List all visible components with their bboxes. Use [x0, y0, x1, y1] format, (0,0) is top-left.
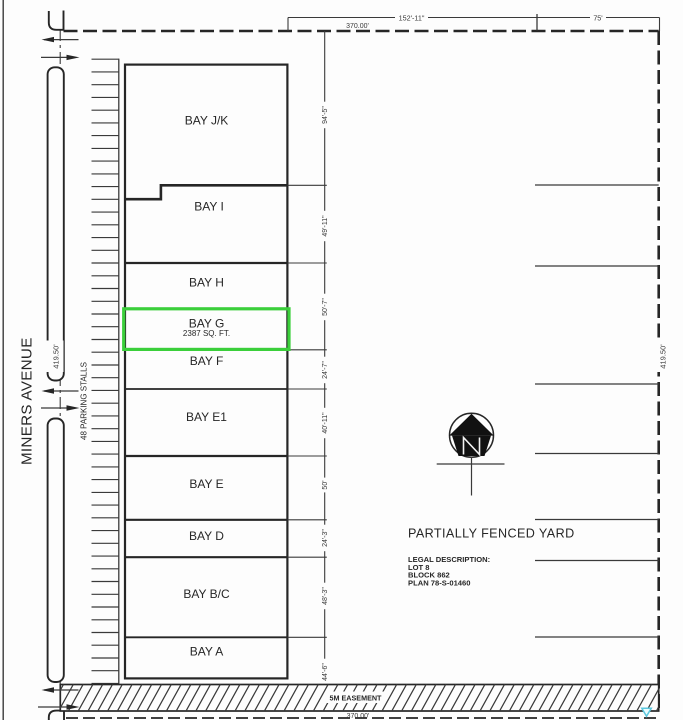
- svg-text:BAY G: BAY G: [189, 316, 225, 330]
- svg-text:48'-3": 48'-3": [322, 587, 329, 605]
- svg-text:PLAN 78-S-01460: PLAN 78-S-01460: [408, 578, 470, 587]
- svg-text:BAY A: BAY A: [190, 644, 224, 658]
- svg-text:BAY J/K: BAY J/K: [185, 114, 229, 128]
- svg-text:370.00': 370.00': [347, 713, 370, 720]
- svg-text:49'-11": 49'-11": [322, 215, 329, 237]
- svg-text:94'-5": 94'-5": [322, 106, 329, 124]
- svg-text:BAY D: BAY D: [189, 529, 224, 543]
- svg-text:50'-7": 50'-7": [322, 298, 329, 316]
- svg-text:419.50': 419.50': [52, 344, 61, 369]
- svg-text:MINERS AVENUE: MINERS AVENUE: [18, 337, 35, 465]
- svg-text:75': 75': [593, 13, 603, 22]
- svg-text:24'-3": 24'-3": [322, 529, 329, 547]
- svg-text:BAY B/C: BAY B/C: [183, 587, 230, 601]
- svg-text:44'-6": 44'-6": [322, 663, 329, 681]
- svg-text:BAY I: BAY I: [194, 199, 224, 213]
- svg-text:24'-7": 24'-7": [322, 361, 329, 379]
- svg-text:5M EASEMENT: 5M EASEMENT: [330, 694, 383, 703]
- svg-text:370.00': 370.00': [346, 23, 369, 30]
- svg-text:BAY F: BAY F: [190, 354, 224, 368]
- svg-text:152'-11": 152'-11": [399, 13, 425, 22]
- svg-text:PARTIALLY FENCED YARD: PARTIALLY FENCED YARD: [408, 527, 575, 541]
- svg-text:40'-11": 40'-11": [322, 412, 329, 434]
- svg-text:BAY E: BAY E: [189, 477, 223, 491]
- svg-text:419.50': 419.50': [659, 344, 668, 369]
- svg-text:50': 50': [322, 480, 329, 489]
- svg-text:BAY H: BAY H: [189, 275, 224, 289]
- svg-text:48 PARKING STALLS: 48 PARKING STALLS: [80, 362, 89, 440]
- svg-text:2387 SQ. FT.: 2387 SQ. FT.: [183, 329, 230, 338]
- svg-text:BAY E1: BAY E1: [186, 410, 227, 424]
